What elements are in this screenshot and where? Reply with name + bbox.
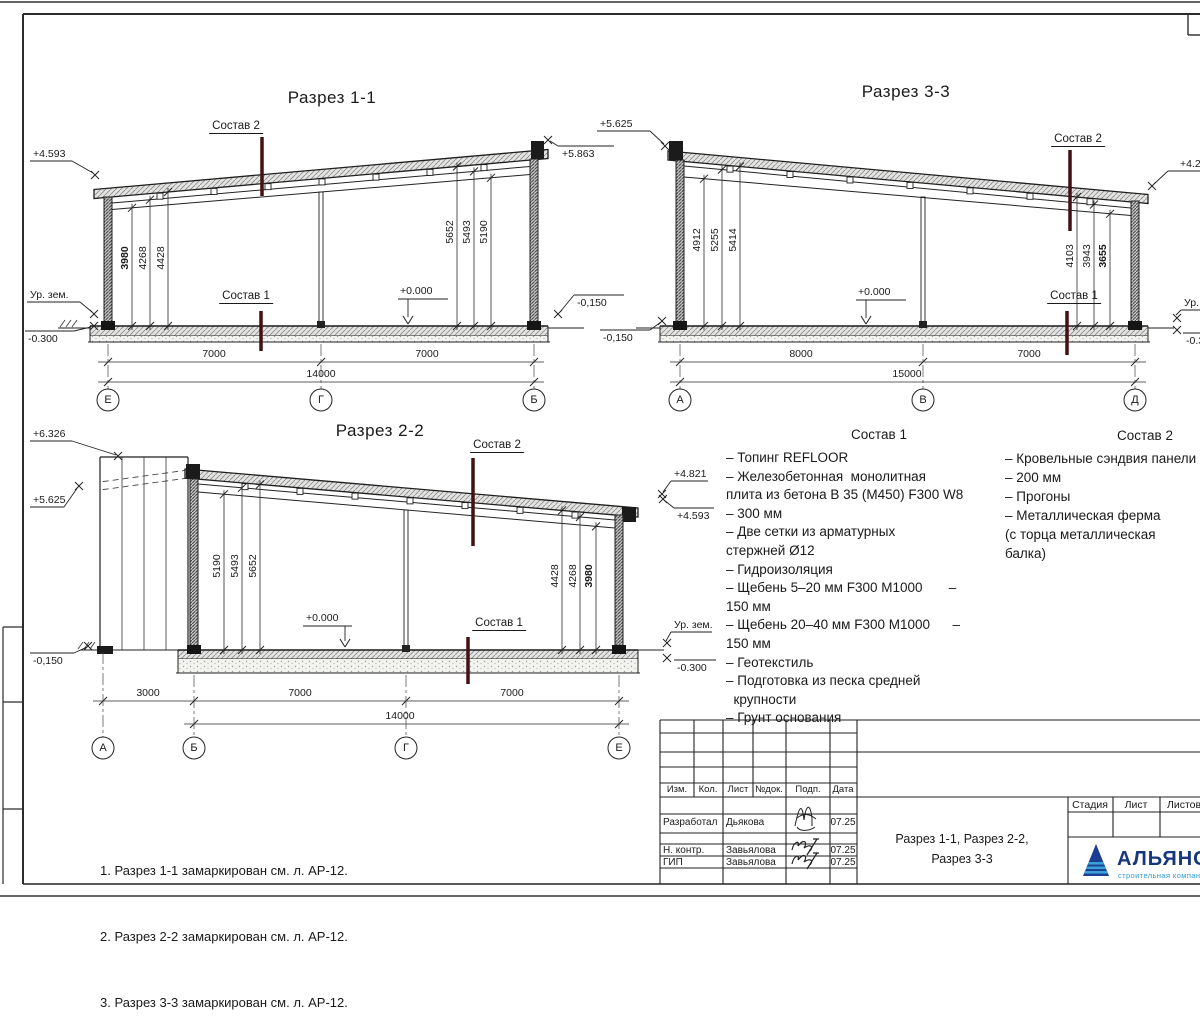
elevation-value: Ур. зем.	[30, 289, 69, 301]
composition-1-line: плита из бетона В 35 (М450) F300 W8	[726, 486, 963, 505]
stamp-sheets: Листов	[1167, 799, 1200, 811]
composition-2-title: Состав 2	[1117, 426, 1173, 445]
section-2-2-title: Разрез 2-2	[336, 421, 424, 441]
dim-value: 5652	[444, 220, 456, 243]
logo-tagline: строительная компания	[1118, 871, 1200, 880]
drawing-sheet: { "sections": { "s1": { "title": "Разрез…	[0, 0, 1200, 900]
span-value: 7000	[202, 348, 225, 360]
stamp-role-2: Н. контр.	[663, 845, 704, 856]
span-value: 7000	[1017, 348, 1040, 360]
signature-gip	[789, 852, 831, 870]
dim-value: 4912	[691, 228, 703, 251]
axis-letter: А	[676, 394, 683, 406]
composition-2-line: балка)	[1005, 544, 1196, 563]
elevation-value: +5.863	[562, 148, 594, 160]
note-2: 2. Разрез 2-2 замаркирован см. л. АР-12.	[100, 926, 348, 948]
composition-1-line: – Топинг REFLOOR	[726, 449, 963, 468]
stamp-date-3: 07.25	[830, 857, 855, 868]
composition-2-line: – Прогоны	[1005, 487, 1196, 506]
elevation-value: -0.3	[1186, 335, 1200, 347]
elevation-value: Ур.	[1184, 297, 1199, 309]
stamp-date-2: 07.25	[830, 845, 855, 856]
elevation-value: +4.593	[677, 510, 709, 522]
composition-1-line: – Грунт основания	[726, 709, 963, 728]
composition-2-line: – 200 мм	[1005, 468, 1196, 487]
stamp-doc-title-2: Разрез 3-3	[931, 852, 992, 866]
composition-1-title: Состав 1	[851, 426, 907, 445]
dim-value: 5255	[709, 228, 721, 251]
dim-value: 4268	[137, 246, 149, 269]
elevation-value: -0,150	[33, 655, 63, 667]
elevation-value: +4.2	[1180, 158, 1200, 170]
axis-letter: Б	[190, 742, 197, 754]
zero-elevation: +0.000	[306, 612, 338, 624]
composition-2-line: (с торца металлическая	[1005, 525, 1196, 544]
dim-value: 5414	[727, 228, 739, 251]
signature-razrabotal	[789, 800, 829, 832]
composition-1-line: – Гидроизоляция	[726, 561, 963, 580]
elevation-value: Ур. зем.	[674, 619, 713, 631]
sostav-1-label: Состав 1	[472, 617, 526, 631]
composition-1-line: стержней Ø12	[726, 542, 963, 561]
composition-1-line: – Щебень 20–40 мм F300 М1000 –	[726, 616, 963, 635]
composition-2-list: – Кровельные сэндвия панели– 200 мм– Про…	[1005, 449, 1196, 563]
total-span-value: 14000	[385, 710, 414, 722]
axis-letter: Б	[530, 394, 537, 406]
composition-1-line: – Подготовка из песка средней	[726, 672, 963, 691]
dim-value: 3980	[119, 246, 131, 269]
composition-2-line: – Металлическая ферма	[1005, 506, 1196, 525]
dim-value: 5493	[461, 220, 473, 243]
composition-1-line: – Щебень 5–20 мм F300 М1000 –	[726, 579, 963, 598]
dim-value: 4428	[549, 564, 561, 587]
sostav-1-label: Состав 1	[1047, 290, 1101, 304]
dim-value: 5190	[211, 554, 223, 577]
elevation-value: +6.326	[33, 428, 65, 440]
sostav-2-label: Состав 2	[209, 120, 263, 134]
notes: 1. Разрез 1-1 замаркирован см. л. АР-12.…	[100, 816, 348, 1036]
composition-1-line: крупности	[726, 691, 963, 710]
elevation-value: +4.593	[33, 148, 65, 160]
span-value: 7000	[500, 687, 523, 699]
stamp-col-list: Лист	[728, 784, 749, 795]
sostav-2-label: Состав 2	[1051, 133, 1105, 147]
section-1-1-title: Разрез 1-1	[288, 88, 376, 108]
stamp-col-podp: Подп.	[795, 784, 820, 795]
stamp-col-izm: Изм.	[667, 784, 687, 795]
note-3: 3. Разрез 3-3 замаркирован см. л. АР-12.	[100, 992, 348, 1014]
dim-value: 5493	[229, 554, 241, 577]
span-value: 7000	[288, 687, 311, 699]
axis-letter: В	[919, 394, 926, 406]
composition-1-line: 150 мм	[726, 598, 963, 617]
stamp-sheet: Лист	[1125, 799, 1148, 811]
dim-value: 4428	[155, 246, 167, 269]
stamp-role-3: ГИП	[663, 857, 683, 868]
stamp-name-2: Завьялова	[726, 845, 776, 856]
elevation-value: -0,150	[603, 332, 633, 344]
composition-1-line: – Геотекстиль	[726, 654, 963, 673]
zero-elevation: +0.000	[400, 285, 432, 297]
stamp-name-1: Дьякова	[726, 817, 764, 828]
zero-elevation: +0.000	[858, 286, 890, 298]
composition-1-list: – Топинг REFLOOR– Железобетонная монолит…	[726, 449, 963, 728]
axis-letter: Е	[104, 394, 111, 406]
stamp-date-1: 07.25	[830, 817, 855, 828]
sostav-1-label: Состав 1	[219, 290, 273, 304]
dim-value: 3943	[1081, 244, 1093, 267]
stamp-col-ndok: №док.	[755, 784, 783, 795]
axis-letter: Е	[615, 742, 622, 754]
composition-1-line: 150 мм	[726, 635, 963, 654]
span-value: 7000	[415, 348, 438, 360]
axis-letter: Д	[1131, 394, 1138, 406]
stamp-stage: Стадия	[1072, 799, 1108, 811]
span-value: 3000	[136, 687, 159, 699]
axis-letter: Г	[403, 742, 409, 754]
stamp-doc-title-1: Разрез 1-1, Разрез 2-2,	[895, 832, 1028, 846]
logo-triangle-icon	[1083, 844, 1109, 876]
dim-value: 4268	[567, 564, 579, 587]
dim-value: 3980	[583, 564, 595, 587]
stamp-role-1: Разработал	[663, 817, 717, 828]
elevation-value: -0,150	[577, 297, 607, 309]
total-span-value: 15000	[892, 368, 921, 380]
axis-letter: Г	[318, 394, 324, 406]
elevation-value: -0.300	[677, 662, 707, 674]
stamp-col-kol: Кол.	[699, 784, 718, 795]
elevation-value: +5.625	[600, 118, 632, 130]
span-value: 8000	[789, 348, 812, 360]
elevation-value: +4.821	[674, 468, 706, 480]
dim-value: 5190	[478, 220, 490, 243]
axis-letter: А	[99, 742, 106, 754]
elevation-value: -0.300	[28, 333, 58, 345]
total-span-value: 14000	[306, 368, 335, 380]
stamp-name-3: Завьялова	[726, 857, 776, 868]
composition-2-line: – Кровельные сэндвия панели	[1005, 449, 1196, 468]
dim-value: 3655	[1097, 244, 1109, 267]
sostav-2-label: Состав 2	[470, 439, 524, 453]
dim-value: 4103	[1064, 244, 1076, 267]
dim-value: 5652	[247, 554, 259, 577]
composition-1-line: – Две сетки из арматурных	[726, 523, 963, 542]
elevation-value: +5.625	[33, 494, 65, 506]
stamp-col-data: Дата	[832, 784, 853, 795]
composition-1-line: – 300 мм	[726, 505, 963, 524]
logo-name: АЛЬЯНС	[1117, 848, 1200, 871]
composition-1-line: – Железобетонная монолитная	[726, 468, 963, 487]
note-1: 1. Разрез 1-1 замаркирован см. л. АР-12.	[100, 860, 348, 882]
section-3-3-title: Разрез 3-3	[862, 82, 950, 102]
